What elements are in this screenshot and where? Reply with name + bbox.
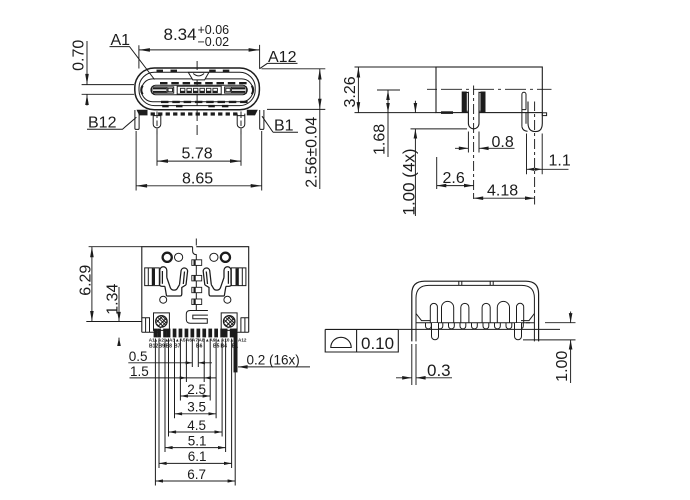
svg-text:4.5: 4.5 — [187, 418, 206, 433]
svg-text:▲: ▲ — [216, 338, 221, 343]
svg-text:5.1: 5.1 — [188, 433, 207, 448]
svg-text:8.34: 8.34 — [164, 25, 197, 44]
svg-text:3.5: 3.5 — [187, 400, 206, 415]
svg-text:B12: B12 — [149, 344, 158, 350]
svg-text:0.3: 0.3 — [427, 361, 451, 380]
svg-text:1.00 (4x): 1.00 (4x) — [399, 148, 418, 215]
svg-text:0.2 (16x): 0.2 (16x) — [247, 352, 300, 367]
svg-text:A7: A7 — [192, 338, 198, 343]
svg-text:2.56±0.04: 2.56±0.04 — [303, 117, 320, 188]
svg-text:6.29: 6.29 — [77, 265, 94, 296]
svg-text:0.10: 0.10 — [361, 334, 394, 353]
svg-text:5.78: 5.78 — [182, 145, 213, 162]
svg-text:1.1: 1.1 — [549, 152, 571, 169]
svg-text:1.5: 1.5 — [130, 364, 149, 379]
svg-text:−0.02: −0.02 — [198, 35, 230, 49]
svg-text:0.5: 0.5 — [129, 349, 148, 364]
svg-text:4.18: 4.18 — [487, 183, 518, 200]
svg-text:B6: B6 — [196, 344, 203, 350]
svg-text:A12: A12 — [238, 338, 247, 343]
svg-text:0.70: 0.70 — [71, 40, 88, 71]
svg-text:B4: B4 — [221, 344, 228, 350]
svg-text:3.26: 3.26 — [342, 76, 359, 107]
svg-text:1.68: 1.68 — [371, 124, 388, 155]
svg-text:1.34: 1.34 — [104, 284, 121, 315]
svg-text:0.8: 0.8 — [492, 134, 514, 151]
svg-text:6.1: 6.1 — [188, 449, 207, 464]
svg-text:2.5: 2.5 — [187, 382, 206, 397]
svg-text:2.6: 2.6 — [443, 170, 465, 187]
svg-text:1.00: 1.00 — [554, 351, 571, 382]
svg-text:6.7: 6.7 — [187, 467, 206, 482]
svg-text:8.65: 8.65 — [182, 171, 213, 188]
